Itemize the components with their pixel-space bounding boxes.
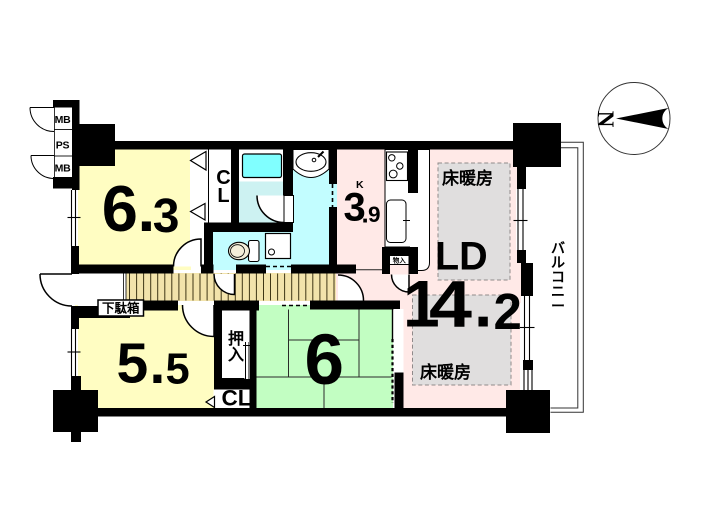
svg-text:PS: PS bbox=[56, 140, 70, 152]
svg-text:5: 5 bbox=[117, 332, 149, 396]
svg-text:4: 4 bbox=[429, 267, 472, 341]
svg-text:ー: ー bbox=[551, 298, 565, 314]
svg-text:.: . bbox=[474, 266, 492, 340]
svg-text:床暖房: 床暖房 bbox=[420, 362, 471, 382]
svg-text:入: 入 bbox=[228, 346, 244, 364]
svg-text:9: 9 bbox=[368, 202, 381, 227]
svg-text:2: 2 bbox=[494, 283, 522, 340]
svg-text:CL: CL bbox=[222, 386, 252, 411]
svg-text:下駄箱: 下駄箱 bbox=[102, 301, 140, 316]
svg-text:物入: 物入 bbox=[393, 256, 407, 265]
svg-text:3: 3 bbox=[153, 190, 180, 243]
svg-text:N: N bbox=[593, 111, 618, 128]
svg-text:5: 5 bbox=[166, 346, 190, 394]
svg-text:MB: MB bbox=[55, 163, 71, 175]
svg-text:床暖房: 床暖房 bbox=[442, 168, 493, 188]
svg-text:6: 6 bbox=[102, 172, 138, 245]
svg-text:MB: MB bbox=[55, 114, 71, 126]
svg-text:6: 6 bbox=[305, 321, 345, 400]
svg-text:.: . bbox=[150, 332, 166, 396]
svg-text:押: 押 bbox=[228, 329, 244, 348]
svg-text:L: L bbox=[217, 185, 229, 207]
